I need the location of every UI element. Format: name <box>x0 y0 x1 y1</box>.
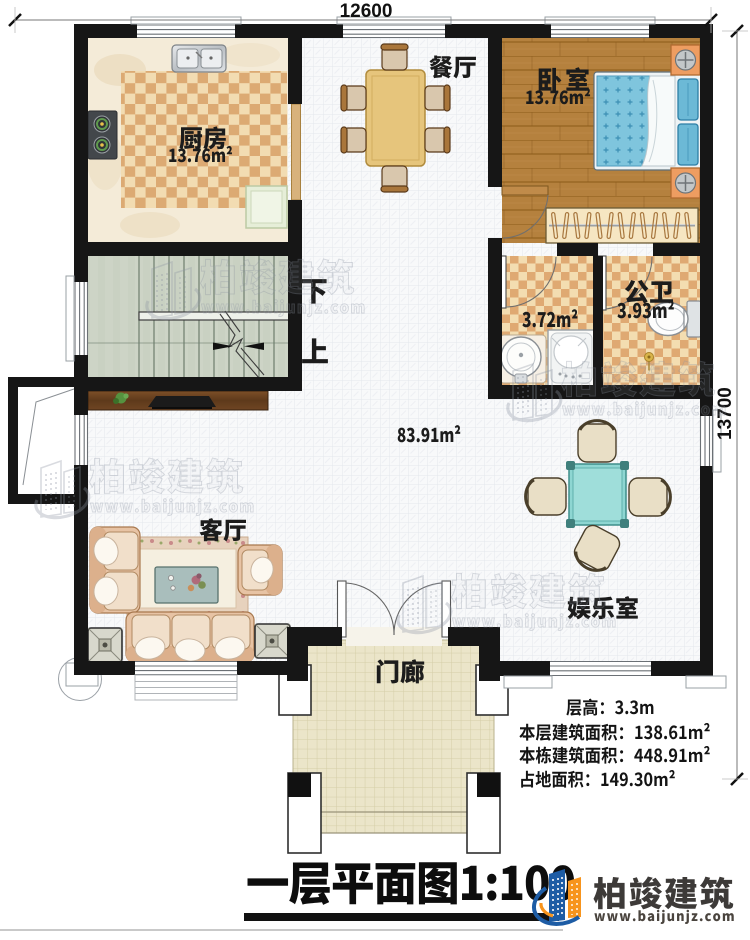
svg-text:12600: 12600 <box>340 1 393 22</box>
